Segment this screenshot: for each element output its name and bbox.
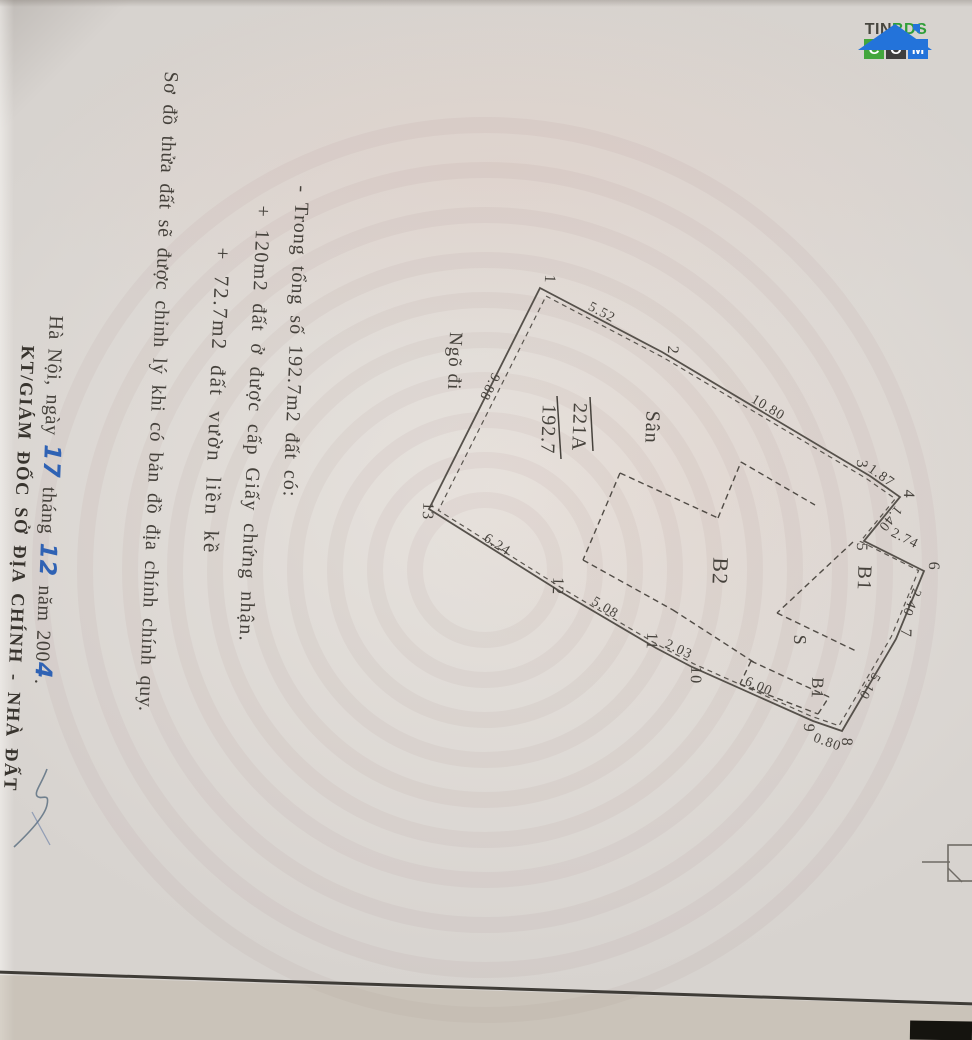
scan-corner-mark: [910, 1020, 972, 1040]
parcel-area: 192.7: [536, 404, 560, 455]
watermark-ring: [295, 380, 675, 760]
edge-length-label: 2.74: [888, 526, 920, 552]
page-bottom-strip: [0, 975, 972, 1040]
region-label: B1: [808, 677, 828, 699]
watermark-ring: [255, 340, 715, 800]
region-label: Ngõ đi: [443, 332, 466, 391]
vertex-label: 2: [664, 345, 681, 355]
vertex-label: 13: [419, 502, 437, 521]
vertex-label: 9: [800, 723, 817, 733]
watermark-ring: [85, 170, 885, 970]
vertex-label: 11: [643, 632, 661, 650]
vertex-label: 7: [897, 628, 914, 638]
scanned-land-certificate-page: 123456789101112135.5210.801.871.402.742.…: [0, 0, 972, 1040]
vertex-label: 10: [687, 666, 705, 685]
edge-length-label: 2.03: [662, 637, 694, 663]
watermark-ring: [415, 500, 555, 640]
tinbds-logo: TINBDS C O M: [856, 22, 936, 59]
registration-mark-box: [948, 845, 972, 881]
handwritten-day: 17: [37, 444, 64, 479]
vertex-label: 5: [853, 542, 870, 552]
parcel-number: 221A: [567, 403, 591, 452]
region-label: B1: [853, 565, 876, 591]
vertex-label: 4: [900, 489, 917, 499]
vertex-label: 12: [549, 577, 567, 596]
region-label: S: [790, 634, 810, 646]
region-label: Sân: [640, 410, 663, 444]
edge-length-label: 0.80: [811, 731, 843, 755]
region-label: B2: [708, 557, 734, 586]
handwritten-year-digit: 4: [29, 662, 56, 680]
house-roof-icon: [856, 22, 934, 52]
date-place: Hà Nội, ngày: [40, 315, 67, 445]
registration-mark-diagonal: [948, 868, 962, 882]
vertex-label: 1: [541, 274, 558, 284]
date-period: .: [30, 679, 52, 685]
date-year-word: năm 200: [31, 576, 56, 662]
date-month-word: tháng: [36, 478, 61, 543]
vertex-label: 6: [925, 561, 942, 571]
vertex-label: 3: [853, 459, 870, 469]
handwritten-month: 12: [34, 542, 61, 577]
